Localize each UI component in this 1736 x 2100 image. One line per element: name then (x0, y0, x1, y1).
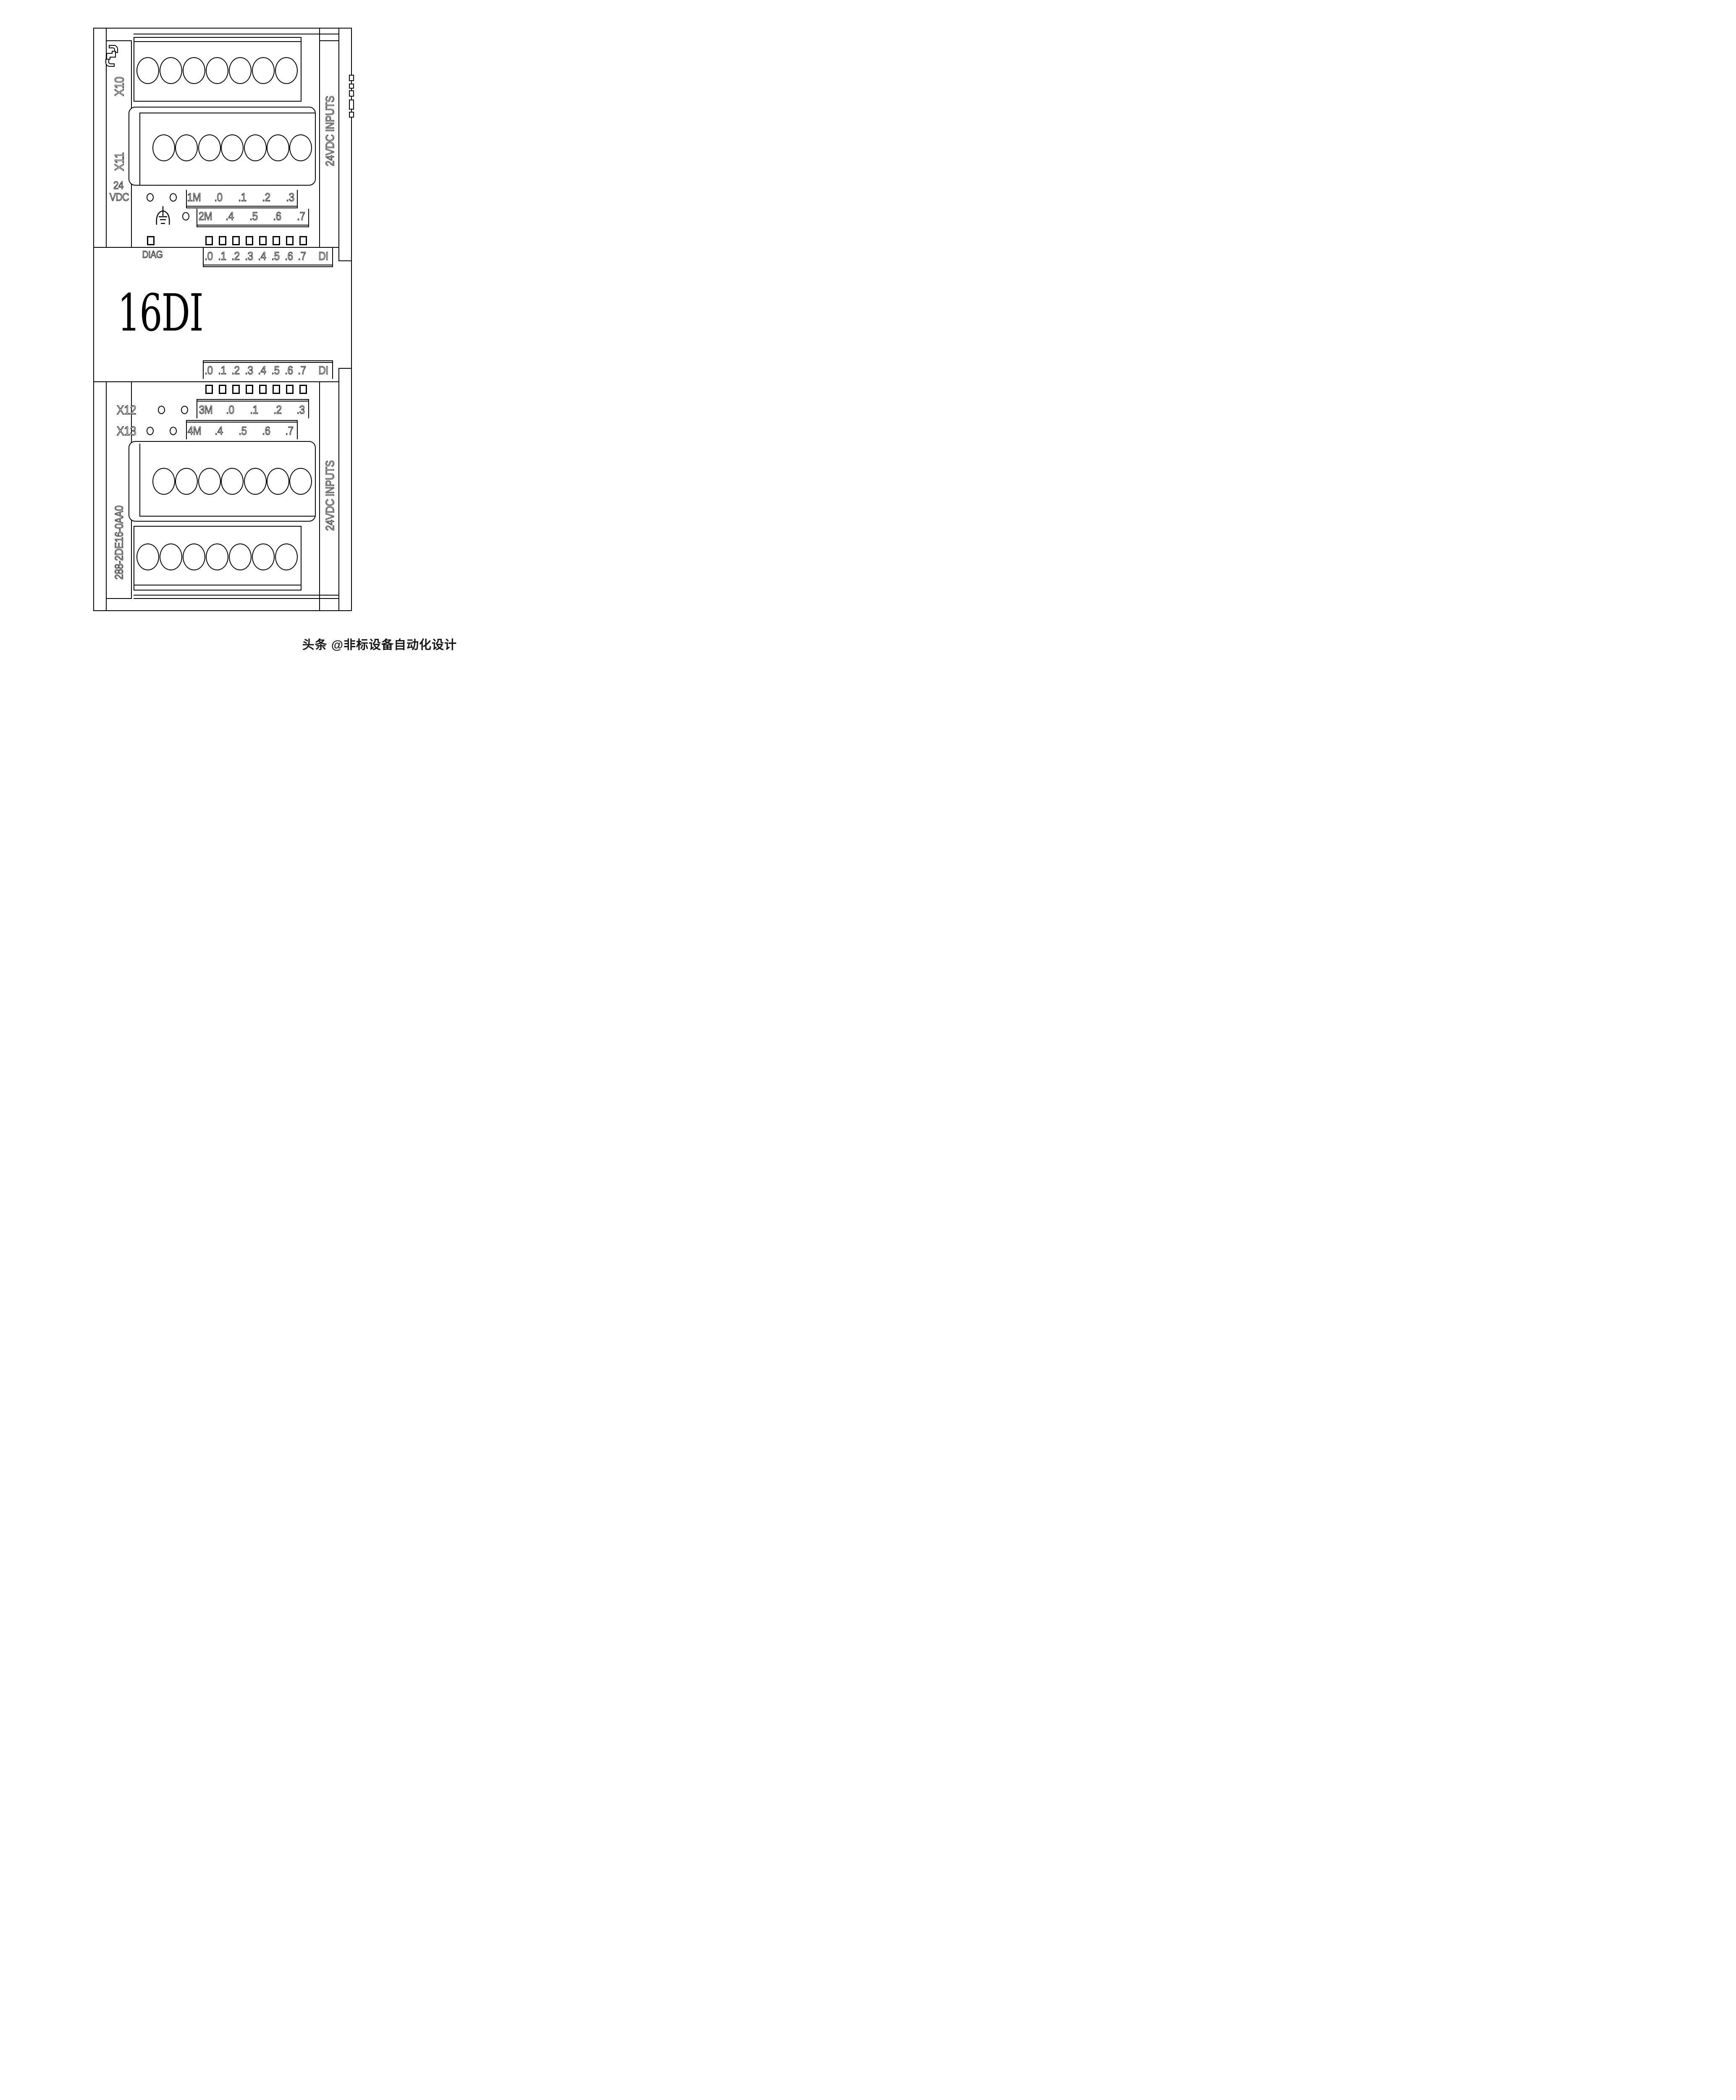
terminal-label: .7 (285, 425, 293, 437)
divider-upper-step-h (338, 260, 352, 261)
terminal-circle (206, 57, 228, 84)
right-strip-inner-top (319, 28, 320, 248)
bottom-band-line1 (134, 595, 339, 596)
wiring-terminal-dot (147, 427, 154, 435)
led-indicator (259, 385, 267, 394)
order-number-label: 288-2DE16-0AA0 (114, 506, 125, 580)
led-indicator (232, 385, 240, 394)
terminal-circle (267, 134, 289, 161)
right-notch-top-edge (319, 40, 339, 41)
terminal-circle (229, 543, 252, 570)
bracket-line (197, 226, 309, 227)
terminal-block-x12-inner-bottom (139, 516, 315, 517)
led-channel-label: .0 (205, 250, 212, 262)
terminal-block-x12-inner-left (139, 444, 140, 517)
bracket-line (197, 225, 309, 226)
divider-lower (93, 381, 339, 382)
side-label-24vdc-inputs-top: 24VDC INPUTS (324, 96, 336, 166)
bracket-line (186, 206, 298, 207)
terminal-label: .4 (215, 425, 223, 437)
watermark-text: 头条 @非标设备自动化设计 (302, 635, 457, 653)
terminal-label: .7 (297, 210, 305, 222)
terminal-label: .0 (214, 192, 222, 203)
terminal-label: .3 (286, 192, 294, 203)
led-channel-label: .3 (245, 250, 253, 262)
bracket-line (203, 360, 333, 361)
led-indicator (259, 236, 267, 245)
terminal-block-x10-inner-edge (134, 41, 302, 42)
terminal-circle (183, 57, 205, 84)
rail-clip-detail (349, 100, 354, 110)
bracket-bar (332, 248, 333, 266)
led-indicator (219, 236, 226, 245)
led-indicator (273, 385, 280, 394)
rail-clip-detail (349, 75, 354, 81)
led-channel-label: .5 (271, 365, 279, 376)
bracket-line (186, 207, 298, 208)
terminal-circle (175, 134, 198, 161)
led-group-label-di: DI (318, 365, 328, 376)
terminal-label: .6 (262, 425, 270, 437)
terminal-circle (229, 57, 252, 84)
terminal-circle (152, 468, 175, 495)
terminal-circle (175, 468, 198, 495)
led-channel-label: .3 (245, 365, 253, 376)
terminal-label: .0 (226, 404, 234, 416)
bottom-band-line2 (134, 598, 339, 599)
terminal-label: .3 (296, 404, 304, 416)
bracket-bar (308, 399, 309, 418)
rail-clip-detail (349, 84, 354, 89)
right-strip-outer-top (338, 28, 339, 248)
divider-lower-step-v (338, 368, 339, 382)
terminal-circle (206, 543, 228, 570)
led-channel-label: .7 (298, 365, 306, 376)
terminal-label: 4M (188, 425, 202, 437)
led-channel-label: .5 (271, 250, 279, 262)
right-strip-outer-bottom (338, 382, 339, 611)
label-column-top-edge (106, 40, 132, 41)
terminal-circle (160, 543, 182, 570)
led-indicator (205, 236, 213, 245)
divider-lower-step-h (338, 368, 352, 369)
power-label-24: 24 (113, 180, 123, 191)
connector-label-x12: X12 (117, 404, 136, 417)
connector-label-x11: X11 (113, 152, 126, 171)
terminal-circle (275, 57, 298, 84)
bracket-line (203, 266, 333, 267)
terminal-circle (289, 134, 312, 161)
bracket-line (203, 362, 333, 363)
terminal-circle (136, 57, 159, 84)
bracket-bar (197, 209, 197, 226)
bracket-bar (197, 399, 197, 418)
top-band-line (134, 34, 339, 34)
bracket-bar (186, 420, 187, 439)
led-channel-label: .6 (285, 365, 293, 376)
wiring-terminal-dot (170, 427, 177, 435)
led-channel-label: .1 (218, 250, 226, 262)
terminal-circle (244, 468, 267, 495)
bracket-bar (186, 190, 187, 207)
functional-earth-icon (155, 205, 171, 226)
bracket-line (186, 420, 298, 421)
bracket-line (197, 399, 309, 400)
bracket-bar (203, 360, 204, 379)
terminal-label: 2M (199, 210, 212, 222)
wiring-terminal-dot (158, 406, 165, 414)
led-channel-label: .2 (231, 250, 239, 262)
led-indicator (286, 236, 294, 245)
terminal-block-x11-inner-top (139, 113, 315, 113)
bracket-bar (308, 209, 309, 226)
diag-label: DIAG (142, 250, 163, 260)
wiring-terminal-dot (182, 212, 189, 220)
led-channel-label: .4 (258, 250, 266, 262)
terminal-circle (244, 134, 267, 161)
led-indicator (299, 236, 307, 245)
terminal-circle (136, 543, 159, 570)
terminal-label: .1 (238, 192, 246, 203)
divider-upper (93, 247, 339, 248)
led-indicator (273, 236, 280, 245)
terminal-label: .5 (239, 425, 247, 437)
terminal-circle (198, 134, 221, 161)
wiring-terminal-dot (170, 193, 177, 202)
led-channel-label: .0 (205, 365, 212, 376)
terminal-label: .2 (273, 404, 281, 416)
bracket-line (186, 422, 298, 423)
connector-label-x10: X10 (113, 77, 126, 96)
terminal-removal-clip-icon (105, 45, 118, 67)
terminal-circle (267, 468, 289, 495)
terminal-circle (252, 543, 275, 570)
terminal-label: 1M (187, 192, 201, 203)
bracket-bar (297, 420, 298, 439)
terminal-circle (221, 134, 244, 161)
rail-clip-detail (349, 90, 354, 97)
power-label-vdc: VDC (110, 192, 129, 202)
terminal-block-x13-inner-edge (134, 585, 302, 585)
terminal-block-x11-inner-left (139, 113, 140, 185)
diag-led-indicator (147, 236, 155, 245)
led-indicator (219, 385, 226, 394)
bracket-bar (203, 248, 204, 266)
led-indicator (246, 236, 253, 245)
bracket-line (197, 401, 309, 402)
led-indicator (205, 385, 213, 394)
led-group-label-di: DI (318, 250, 328, 262)
led-channel-label: .7 (298, 250, 306, 262)
terminal-circle (160, 57, 182, 84)
plc-module-terminal-diagram: X10 X11 24 VDC 1M .0 .1 .2 .3 2M .4 .5 .… (0, 0, 464, 656)
terminal-circle (275, 543, 298, 570)
terminal-circle (252, 57, 275, 84)
left-strip-line-bottom (106, 382, 107, 611)
terminal-label: .5 (249, 210, 257, 222)
terminal-label: 3M (199, 404, 213, 416)
bracket-bar (332, 360, 333, 379)
led-channel-label: .6 (285, 250, 293, 262)
side-label-24vdc-inputs-bottom: 24VDC INPUTS (324, 460, 336, 530)
divider-upper-step-v (338, 247, 339, 261)
wiring-terminal-dot (181, 406, 188, 414)
terminal-label: .1 (250, 404, 258, 416)
right-strip-inner-bottom (319, 382, 320, 611)
wiring-terminal-dot (147, 193, 154, 202)
led-channel-label: .4 (258, 365, 266, 376)
terminal-label: .4 (226, 210, 233, 222)
led-channel-label: .2 (231, 365, 239, 376)
terminal-circle (221, 468, 244, 495)
led-indicator (232, 236, 240, 245)
connector-label-x13: X13 (117, 425, 136, 438)
bracket-line (203, 265, 333, 265)
bracket-bar (297, 190, 298, 207)
rail-clip-detail (349, 112, 354, 118)
label-column-bottom-edge (106, 598, 132, 599)
terminal-circle (183, 543, 205, 570)
terminal-circle (152, 134, 175, 161)
led-indicator (246, 385, 253, 394)
led-indicator (286, 385, 294, 394)
led-channel-label: .1 (218, 365, 226, 376)
terminal-label: .2 (262, 192, 270, 203)
led-indicator (299, 385, 307, 394)
terminal-circle (198, 468, 221, 495)
product-type-label: 16DI (118, 287, 202, 339)
terminal-label: .6 (273, 210, 281, 222)
terminal-circle (289, 468, 312, 495)
